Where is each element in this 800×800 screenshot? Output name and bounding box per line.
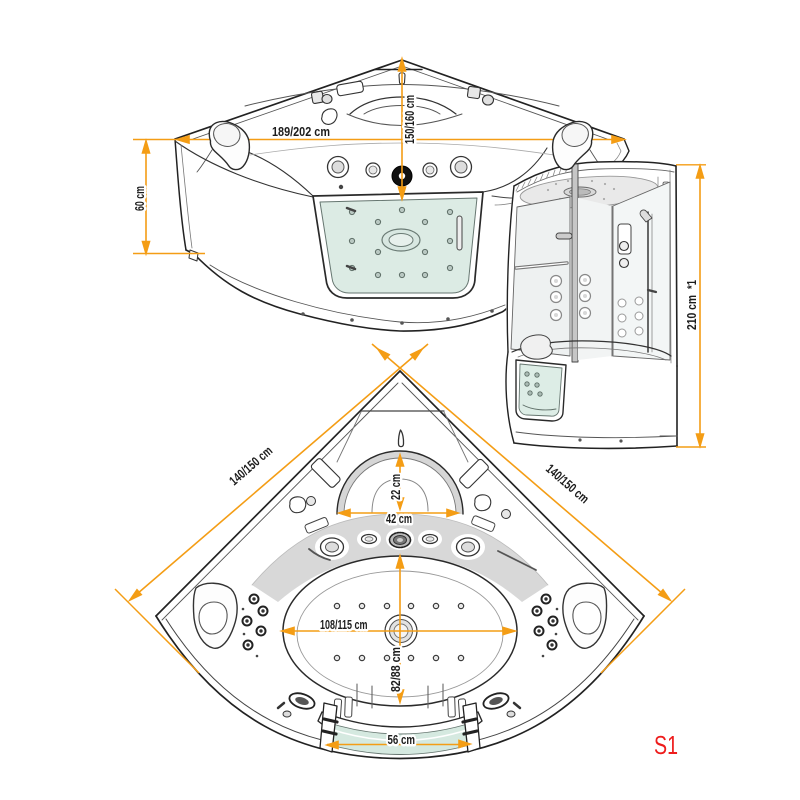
svg-text:60 cm: 60 cm (132, 186, 147, 211)
svg-text:108/115 cm: 108/115 cm (320, 617, 368, 632)
svg-text:S1: S1 (654, 730, 678, 760)
svg-text:*1: *1 (684, 280, 699, 289)
svg-text:42 cm: 42 cm (386, 511, 412, 526)
svg-text:22 cm: 22 cm (388, 474, 403, 500)
svg-text:140/150 cm: 140/150 cm (543, 461, 592, 506)
svg-text:56 cm: 56 cm (388, 732, 416, 747)
svg-text:189/202 cm: 189/202 cm (272, 124, 330, 139)
svg-text:82/88 cm: 82/88 cm (388, 647, 403, 692)
svg-text:150/160 cm: 150/160 cm (402, 95, 417, 144)
svg-text:210 cm: 210 cm (684, 295, 699, 330)
